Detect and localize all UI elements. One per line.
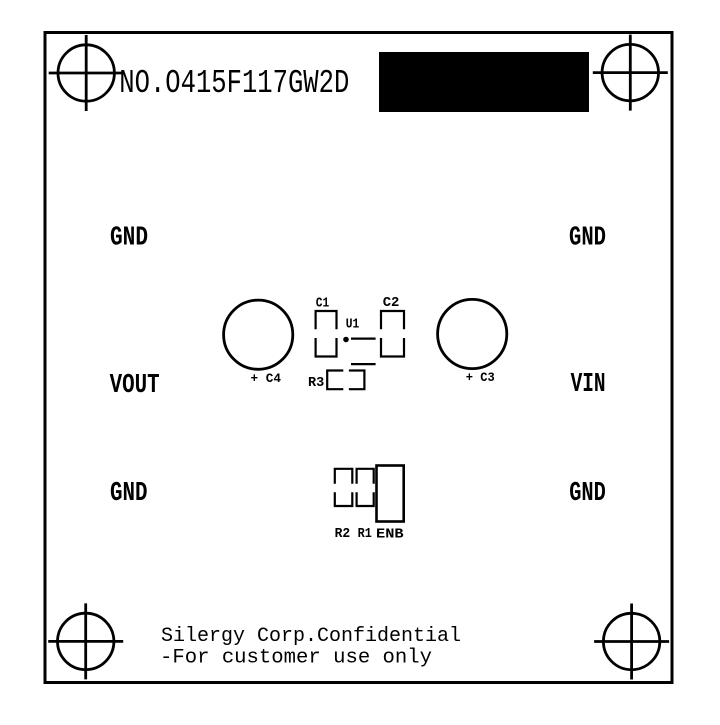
svg-text:VIN: VIN: [571, 370, 606, 400]
svg-text:-For customer use only: -For customer use only: [160, 647, 432, 670]
svg-text:GND: GND: [569, 223, 606, 253]
svg-text:GND: GND: [110, 224, 148, 254]
svg-text:C2: C2: [383, 295, 400, 311]
svg-text:R2: R2: [335, 526, 351, 542]
svg-text:R1: R1: [358, 526, 372, 542]
svg-text:GND: GND: [110, 479, 148, 509]
svg-text:ENB: ENB: [376, 526, 404, 542]
svg-text:GND: GND: [569, 479, 606, 509]
svg-text:C1: C1: [316, 296, 330, 312]
svg-text:+ C3: + C3: [466, 370, 495, 385]
svg-text:+ C4: + C4: [251, 371, 282, 386]
svg-text:NO.O415F117GW2D: NO.O415F117GW2D: [119, 65, 349, 102]
svg-text:VOUT: VOUT: [110, 371, 160, 401]
svg-text:U1: U1: [346, 317, 360, 333]
svg-text:R3: R3: [308, 375, 324, 391]
svg-text:Silergy Corp.Confidential: Silergy Corp.Confidential: [161, 625, 461, 648]
